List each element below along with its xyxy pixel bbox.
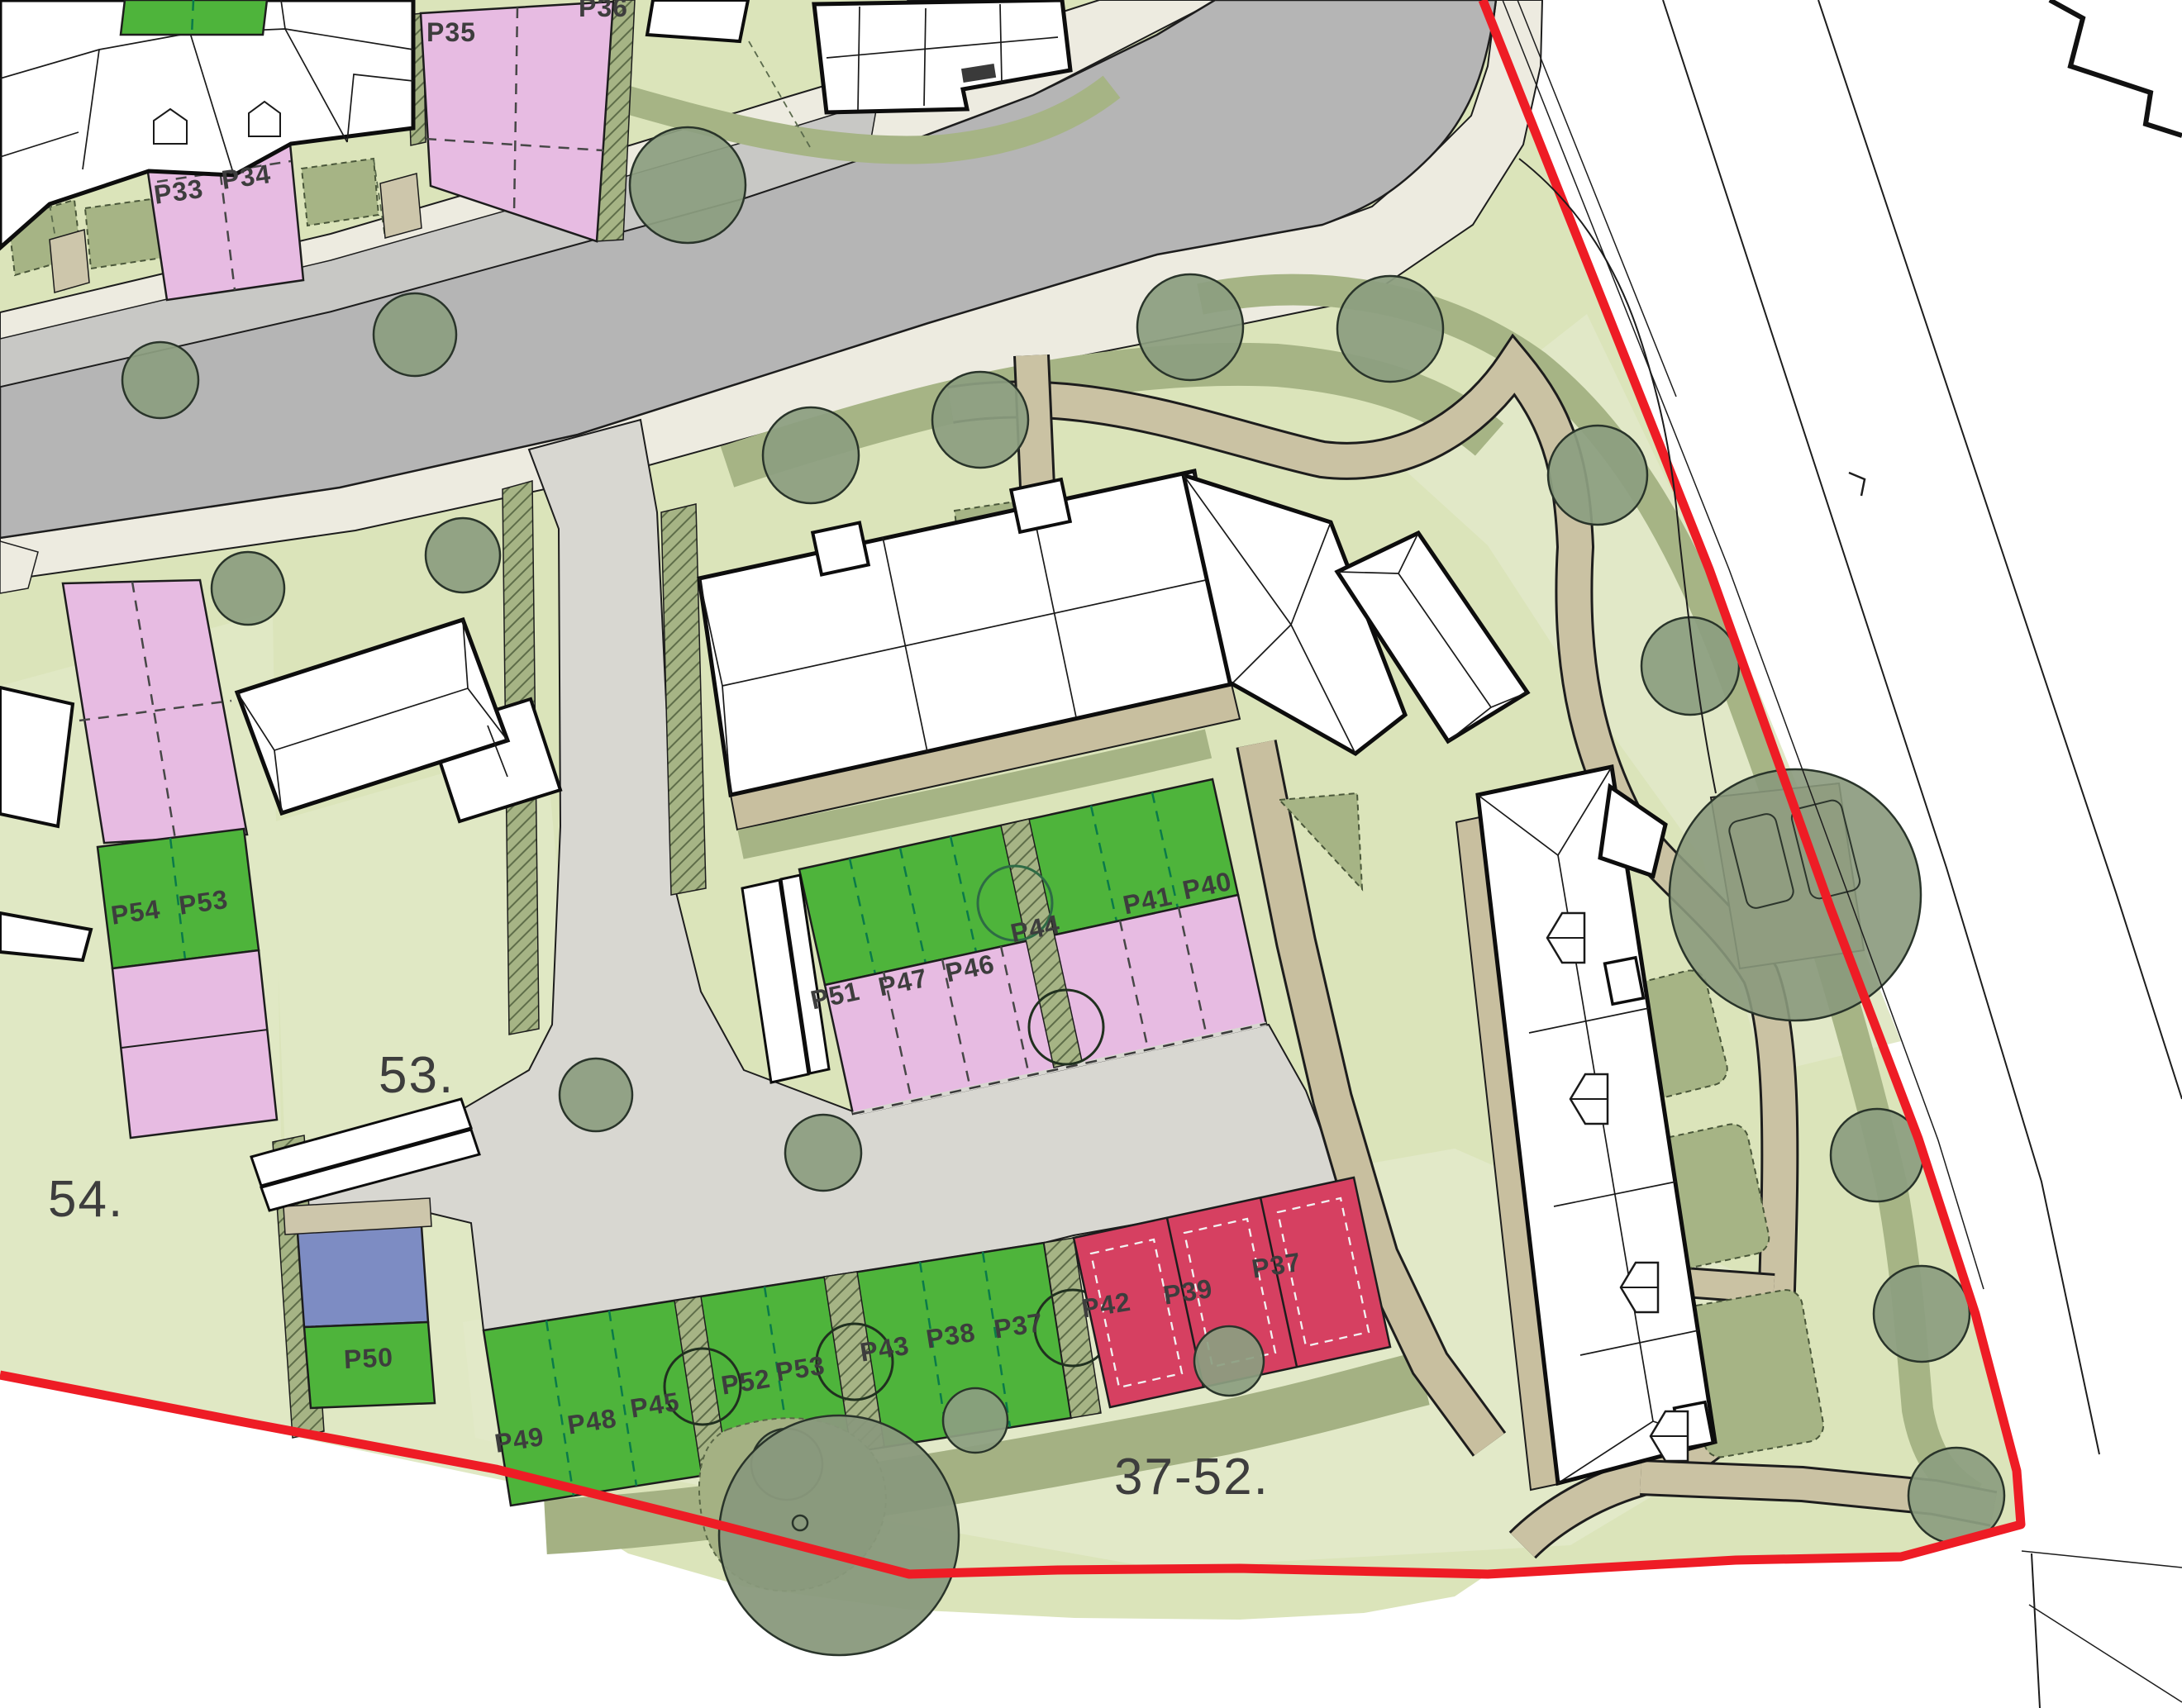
- svg-text:P36: P36: [579, 0, 628, 22]
- svg-text:54.: 54.: [48, 1171, 124, 1228]
- svg-text:53.: 53.: [379, 1047, 455, 1104]
- svg-text:P35: P35: [426, 17, 476, 47]
- svg-text:37-52.: 37-52.: [1114, 1449, 1270, 1506]
- svg-text:P50: P50: [343, 1342, 394, 1374]
